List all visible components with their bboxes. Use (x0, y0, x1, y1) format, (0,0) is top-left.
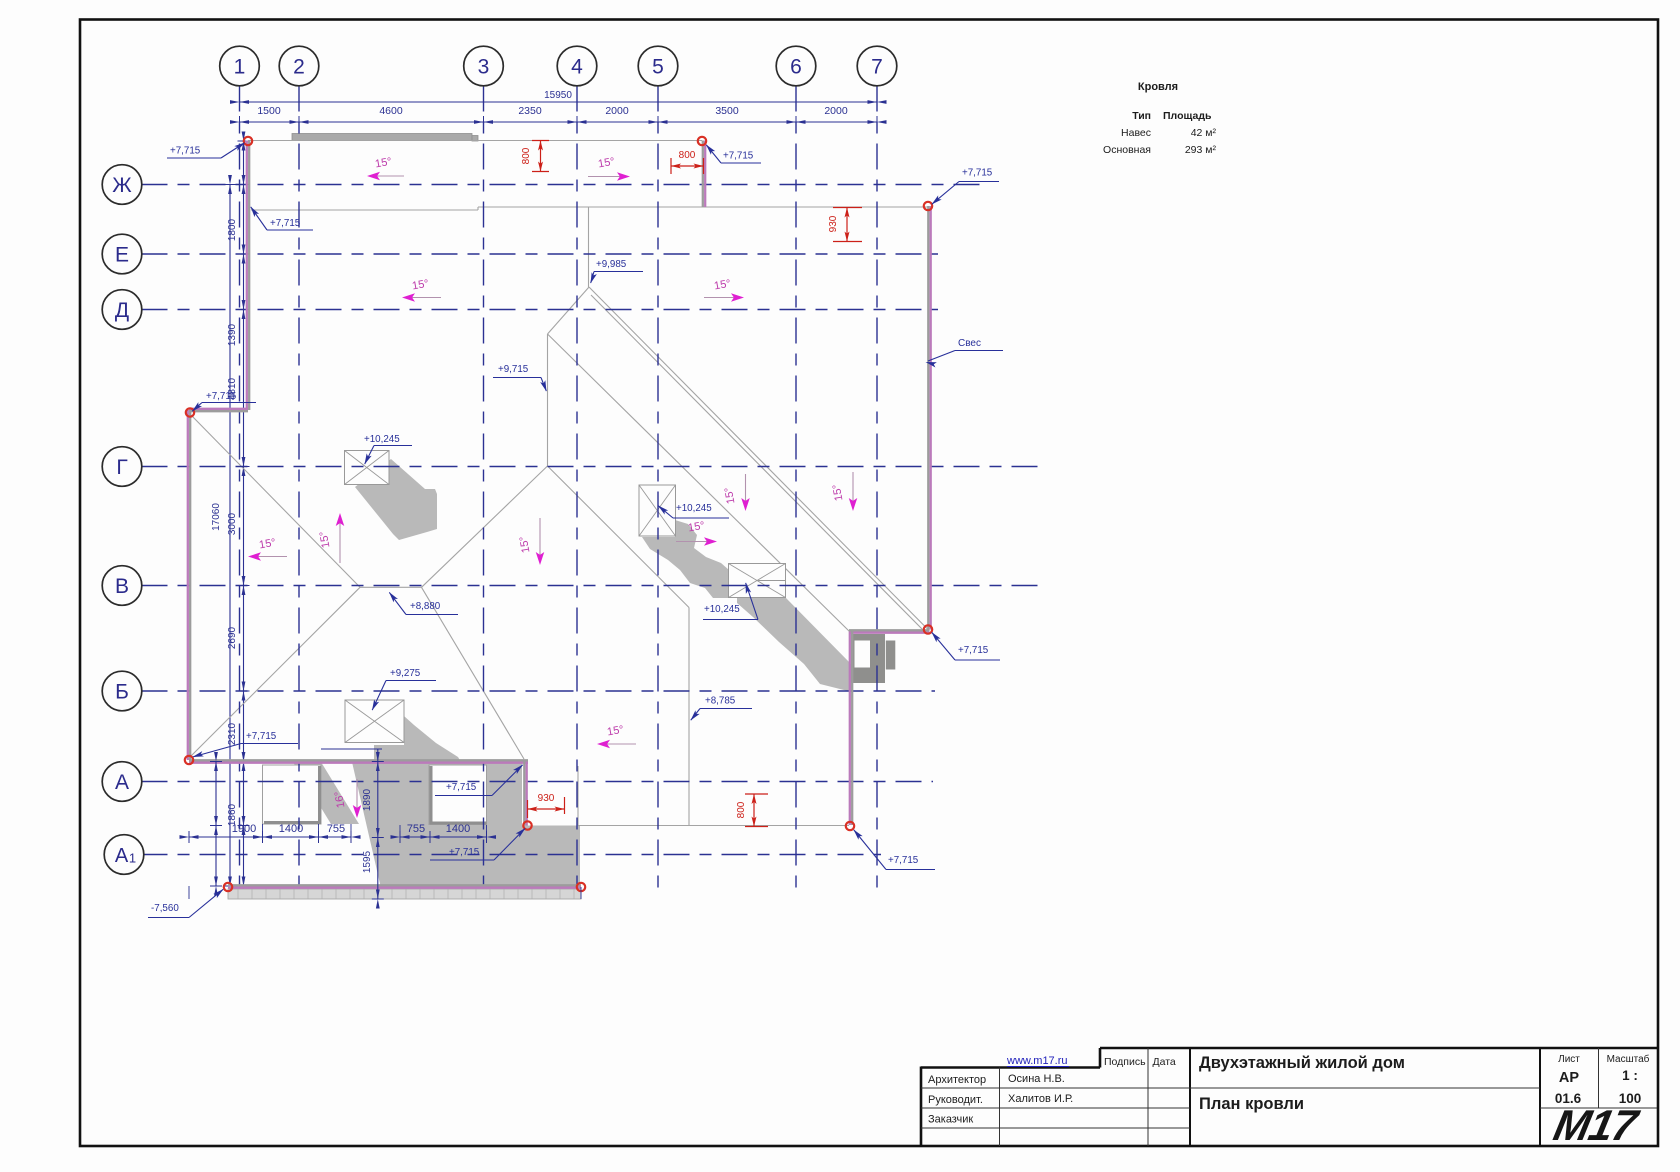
svg-text:3: 3 (478, 56, 490, 79)
svg-text:2310: 2310 (227, 722, 238, 745)
svg-text:www.m17.ru: www.m17.ru (1006, 1055, 1068, 1067)
svg-text:930: 930 (538, 793, 555, 804)
svg-text:Б: Б (115, 681, 129, 704)
svg-text:4: 4 (571, 56, 583, 79)
svg-text:Масштаб: Масштаб (1607, 1053, 1650, 1065)
svg-text:4600: 4600 (379, 105, 403, 117)
svg-text:Подпись: Подпись (1104, 1056, 1146, 1068)
svg-text:+7,715: +7,715 (446, 782, 477, 793)
svg-text:1: 1 (234, 56, 246, 79)
svg-text:+7,715: +7,715 (723, 151, 754, 162)
svg-text:755: 755 (327, 823, 345, 835)
svg-text:+7,715: +7,715 (170, 146, 201, 157)
svg-text:2000: 2000 (824, 105, 848, 117)
svg-text:Тип: Тип (1132, 110, 1151, 122)
svg-text:1: 1 (129, 851, 136, 866)
svg-text:7: 7 (871, 56, 883, 79)
svg-text:Двухэтажный жилой дом: Двухэтажный жилой дом (1199, 1054, 1405, 1072)
svg-text:800: 800 (736, 801, 747, 818)
svg-text:1400: 1400 (279, 823, 303, 835)
svg-text:2: 2 (293, 56, 305, 79)
svg-text:+7,715: +7,715 (958, 645, 989, 656)
svg-text:+7,715: +7,715 (270, 218, 301, 229)
svg-text:Площадь: Площадь (1163, 110, 1212, 122)
svg-text:Е: Е (115, 244, 129, 267)
svg-text:+9,715: +9,715 (498, 364, 529, 375)
svg-text:+10,245: +10,245 (364, 434, 400, 445)
svg-text:Г: Г (116, 456, 127, 479)
svg-text:А: А (115, 845, 129, 867)
svg-text:1390: 1390 (227, 323, 238, 346)
svg-text:+9,275: +9,275 (390, 668, 421, 679)
svg-text:+10,245: +10,245 (704, 604, 740, 615)
svg-text:Д: Д (115, 299, 129, 322)
svg-text:Дата: Дата (1153, 1056, 1176, 1068)
svg-text:1400: 1400 (446, 823, 470, 835)
svg-text:АР: АР (1559, 1070, 1579, 1086)
svg-text:Заказчик: Заказчик (928, 1114, 973, 1126)
svg-text:5: 5 (652, 56, 664, 79)
svg-text:3000: 3000 (227, 512, 238, 535)
svg-text:6: 6 (790, 56, 802, 79)
svg-text:Осина Н.В.: Осина Н.В. (1008, 1073, 1065, 1085)
svg-text:2000: 2000 (605, 105, 629, 117)
svg-text:1500: 1500 (257, 105, 281, 117)
svg-text:930: 930 (828, 215, 839, 232)
svg-text:+9,985: +9,985 (596, 259, 627, 270)
svg-text:755: 755 (407, 823, 425, 835)
svg-text:293 м²: 293 м² (1185, 144, 1217, 156)
svg-text:Руководит.: Руководит. (928, 1094, 983, 1106)
svg-text:1 :: 1 : (1622, 1068, 1638, 1083)
svg-text:А: А (115, 771, 129, 794)
svg-text:1800: 1800 (227, 218, 238, 241)
svg-text:План кровли: План кровли (1199, 1095, 1304, 1113)
svg-text:1900: 1900 (232, 823, 256, 835)
svg-text:Архитектор: Архитектор (928, 1074, 986, 1086)
svg-text:В: В (115, 575, 129, 598)
svg-text:+7,715: +7,715 (962, 168, 993, 179)
svg-text:1595: 1595 (362, 850, 373, 873)
svg-text:Халитов И.Р.: Халитов И.Р. (1008, 1093, 1073, 1105)
svg-text:Ж: Ж (112, 174, 132, 197)
svg-text:+8,785: +8,785 (705, 696, 736, 707)
svg-text:Кровля: Кровля (1138, 81, 1178, 93)
svg-text:Основная: Основная (1103, 144, 1151, 156)
svg-text:M17: M17 (1550, 1102, 1644, 1149)
svg-text:800: 800 (521, 147, 532, 164)
svg-text:17060: 17060 (211, 503, 222, 531)
svg-text:Лист: Лист (1558, 1054, 1580, 1065)
svg-text:+10,245: +10,245 (676, 503, 712, 514)
svg-text:42 м²: 42 м² (1191, 127, 1217, 139)
svg-text:+7,715: +7,715 (449, 847, 480, 858)
svg-text:+7,715: +7,715 (888, 855, 919, 866)
svg-text:15950: 15950 (544, 90, 572, 101)
svg-text:2690: 2690 (227, 626, 238, 649)
svg-text:1890: 1890 (362, 788, 373, 811)
svg-text:-7,560: -7,560 (151, 903, 179, 914)
svg-text:+7,715: +7,715 (246, 731, 277, 742)
svg-text:3500: 3500 (715, 105, 739, 117)
svg-text:Навес: Навес (1121, 127, 1151, 139)
svg-text:+8,880: +8,880 (410, 601, 441, 612)
svg-text:2350: 2350 (518, 105, 542, 117)
svg-text:Свес: Свес (958, 338, 981, 349)
svg-text:800: 800 (679, 150, 696, 161)
svg-text:+7,715: +7,715 (206, 391, 237, 402)
